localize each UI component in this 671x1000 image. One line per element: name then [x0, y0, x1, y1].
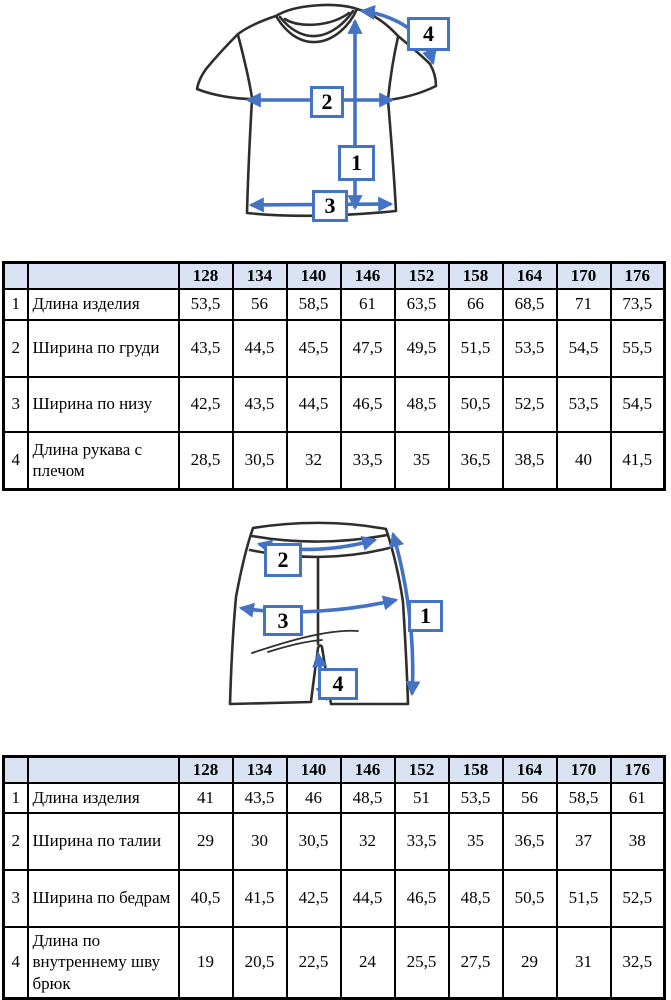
- size-header-cell: 158: [449, 263, 503, 289]
- shorts-measure-label-4: 4: [318, 668, 358, 700]
- size-header-row: 128134140146152158164170176: [4, 263, 665, 289]
- measurement-row: 2Ширина по талии293030,53233,53536,53738: [4, 813, 665, 870]
- shorts-measure-label-1: 1: [408, 600, 443, 632]
- measurement-value-cell: 46,5: [341, 377, 395, 432]
- measurement-value-cell: 41,5: [611, 432, 665, 490]
- measurement-value-cell: 48,5: [395, 377, 449, 432]
- measurement-value-cell: 63,5: [395, 289, 449, 320]
- measurement-value-cell: 66: [449, 289, 503, 320]
- measurement-value-cell: 27,5: [449, 927, 503, 999]
- measurement-value-cell: 47,5: [341, 320, 395, 377]
- measurement-value-cell: 54,5: [611, 377, 665, 432]
- measurement-label-cell: Ширина по низу: [28, 377, 179, 432]
- size-header-cell: 146: [341, 263, 395, 289]
- measurement-value-cell: 51,5: [449, 320, 503, 377]
- measurement-row: 1Длина изделия53,55658,56163,56668,57173…: [4, 289, 665, 320]
- measurement-label-cell: Ширина по груди: [28, 320, 179, 377]
- measurement-value-cell: 51,5: [557, 870, 611, 927]
- size-header-cell: 152: [395, 263, 449, 289]
- tshirt-measure-label-3: 3: [312, 190, 348, 222]
- measurement-label-cell: Длина рукава с плечом: [28, 432, 179, 490]
- measurement-row: 3Ширина по бедрам40,541,542,544,546,548,…: [4, 870, 665, 927]
- row-number-cell: 4: [4, 432, 28, 490]
- header-label-cell: [28, 263, 179, 289]
- measurement-value-cell: 19: [179, 927, 233, 999]
- measurement-label-cell: Длина по внутреннему шву брюк: [28, 927, 179, 999]
- measurement-value-cell: 22,5: [287, 927, 341, 999]
- measurement-value-cell: 50,5: [503, 870, 557, 927]
- row-number-cell: 2: [4, 320, 28, 377]
- measurement-value-cell: 53,5: [179, 289, 233, 320]
- measurement-value-cell: 40: [557, 432, 611, 490]
- size-header-cell: 146: [341, 757, 395, 783]
- measurement-value-cell: 58,5: [557, 783, 611, 813]
- measurement-value-cell: 48,5: [449, 870, 503, 927]
- measurement-value-cell: 43,5: [233, 377, 287, 432]
- measurement-row: 4Длина рукава с плечом28,530,53233,53536…: [4, 432, 665, 490]
- shorts-measure-label-2: 2: [264, 543, 302, 577]
- size-header-cell: 176: [611, 757, 665, 783]
- measurement-value-cell: 44,5: [233, 320, 287, 377]
- measurement-value-cell: 53,5: [449, 783, 503, 813]
- tshirt-measure-label-2: 2: [310, 86, 344, 118]
- measurement-value-cell: 43,5: [233, 783, 287, 813]
- row-number-cell: 3: [4, 870, 28, 927]
- measurement-value-cell: 51: [395, 783, 449, 813]
- size-header-cell: 170: [557, 263, 611, 289]
- row-number-cell: 1: [4, 289, 28, 320]
- header-label-cell: [28, 757, 179, 783]
- measurement-label-cell: Ширина по бедрам: [28, 870, 179, 927]
- measurement-value-cell: 52,5: [503, 377, 557, 432]
- measurement-value-cell: 25,5: [395, 927, 449, 999]
- size-header-row: 128134140146152158164170176: [4, 757, 665, 783]
- measurement-value-cell: 30: [233, 813, 287, 870]
- measurement-value-cell: 56: [503, 783, 557, 813]
- size-header-cell: 140: [287, 757, 341, 783]
- measurement-value-cell: 44,5: [287, 377, 341, 432]
- measurement-value-cell: 41: [179, 783, 233, 813]
- measurement-row: 2Ширина по груди43,544,545,547,549,551,5…: [4, 320, 665, 377]
- measurement-value-cell: 71: [557, 289, 611, 320]
- measurement-row: 4Длина по внутреннему шву брюк1920,522,5…: [4, 927, 665, 999]
- measurement-value-cell: 61: [341, 289, 395, 320]
- header-corner-cell: [4, 757, 28, 783]
- measurement-value-cell: 53,5: [503, 320, 557, 377]
- measurement-value-cell: 29: [179, 813, 233, 870]
- measurement-value-cell: 38: [611, 813, 665, 870]
- shorts-measure-label-3: 3: [263, 605, 303, 636]
- shorts-size-table: 1281341401461521581641701761Длина издели…: [2, 755, 666, 1000]
- measurement-value-cell: 36,5: [449, 432, 503, 490]
- measurement-value-cell: 45,5: [287, 320, 341, 377]
- measurement-value-cell: 42,5: [179, 377, 233, 432]
- measurement-row: 3Ширина по низу42,543,544,546,548,550,55…: [4, 377, 665, 432]
- header-corner-cell: [4, 263, 28, 289]
- measurement-value-cell: 40,5: [179, 870, 233, 927]
- measurement-value-cell: 35: [395, 432, 449, 490]
- measurement-value-cell: 55,5: [611, 320, 665, 377]
- measurement-value-cell: 28,5: [179, 432, 233, 490]
- size-header-cell: 164: [503, 757, 557, 783]
- size-header-cell: 176: [611, 263, 665, 289]
- measurement-value-cell: 30,5: [233, 432, 287, 490]
- measurement-value-cell: 56: [233, 289, 287, 320]
- size-header-cell: 140: [287, 263, 341, 289]
- measurement-value-cell: 73,5: [611, 289, 665, 320]
- measurement-label-cell: Длина изделия: [28, 289, 179, 320]
- measurement-value-cell: 54,5: [557, 320, 611, 377]
- measurement-value-cell: 49,5: [395, 320, 449, 377]
- measurement-value-cell: 46,5: [395, 870, 449, 927]
- size-header-cell: 158: [449, 757, 503, 783]
- tshirt-measure-label-4: 4: [407, 17, 450, 51]
- measurement-value-cell: 32: [341, 813, 395, 870]
- measurement-label-cell: Длина изделия: [28, 783, 179, 813]
- measurement-value-cell: 31: [557, 927, 611, 999]
- measurement-value-cell: 42,5: [287, 870, 341, 927]
- measurement-value-cell: 33,5: [341, 432, 395, 490]
- measurement-value-cell: 46: [287, 783, 341, 813]
- measurement-value-cell: 50,5: [449, 377, 503, 432]
- size-header-cell: 170: [557, 757, 611, 783]
- measurement-value-cell: 32: [287, 432, 341, 490]
- measurement-value-cell: 41,5: [233, 870, 287, 927]
- measurement-value-cell: 68,5: [503, 289, 557, 320]
- tshirt-measure-label-1: 1: [338, 145, 375, 181]
- measurement-value-cell: 48,5: [341, 783, 395, 813]
- measurement-value-cell: 36,5: [503, 813, 557, 870]
- measurement-value-cell: 37: [557, 813, 611, 870]
- measurement-value-cell: 24: [341, 927, 395, 999]
- measurement-value-cell: 44,5: [341, 870, 395, 927]
- measurement-value-cell: 30,5: [287, 813, 341, 870]
- measurement-value-cell: 38,5: [503, 432, 557, 490]
- row-number-cell: 1: [4, 783, 28, 813]
- measurement-value-cell: 35: [449, 813, 503, 870]
- size-header-cell: 164: [503, 263, 557, 289]
- measurement-value-cell: 53,5: [557, 377, 611, 432]
- measurement-value-cell: 32,5: [611, 927, 665, 999]
- measurement-value-cell: 33,5: [395, 813, 449, 870]
- measurement-label-cell: Ширина по талии: [28, 813, 179, 870]
- measurement-value-cell: 43,5: [179, 320, 233, 377]
- size-chart-page: 1 2 3 4 1281341401461521581641701761Длин…: [0, 0, 671, 1000]
- measurement-value-cell: 58,5: [287, 289, 341, 320]
- measurement-value-cell: 29: [503, 927, 557, 999]
- measurement-value-cell: 20,5: [233, 927, 287, 999]
- measurement-value-cell: 61: [611, 783, 665, 813]
- tshirt-size-table: 1281341401461521581641701761Длина издели…: [2, 261, 666, 491]
- size-header-cell: 134: [233, 263, 287, 289]
- measurement-value-cell: 52,5: [611, 870, 665, 927]
- size-header-cell: 128: [179, 263, 233, 289]
- row-number-cell: 3: [4, 377, 28, 432]
- measurement-row: 1Длина изделия4143,54648,55153,55658,561: [4, 783, 665, 813]
- size-header-cell: 152: [395, 757, 449, 783]
- size-header-cell: 134: [233, 757, 287, 783]
- size-header-cell: 128: [179, 757, 233, 783]
- shorts-drawing: [0, 505, 671, 745]
- row-number-cell: 4: [4, 927, 28, 999]
- row-number-cell: 2: [4, 813, 28, 870]
